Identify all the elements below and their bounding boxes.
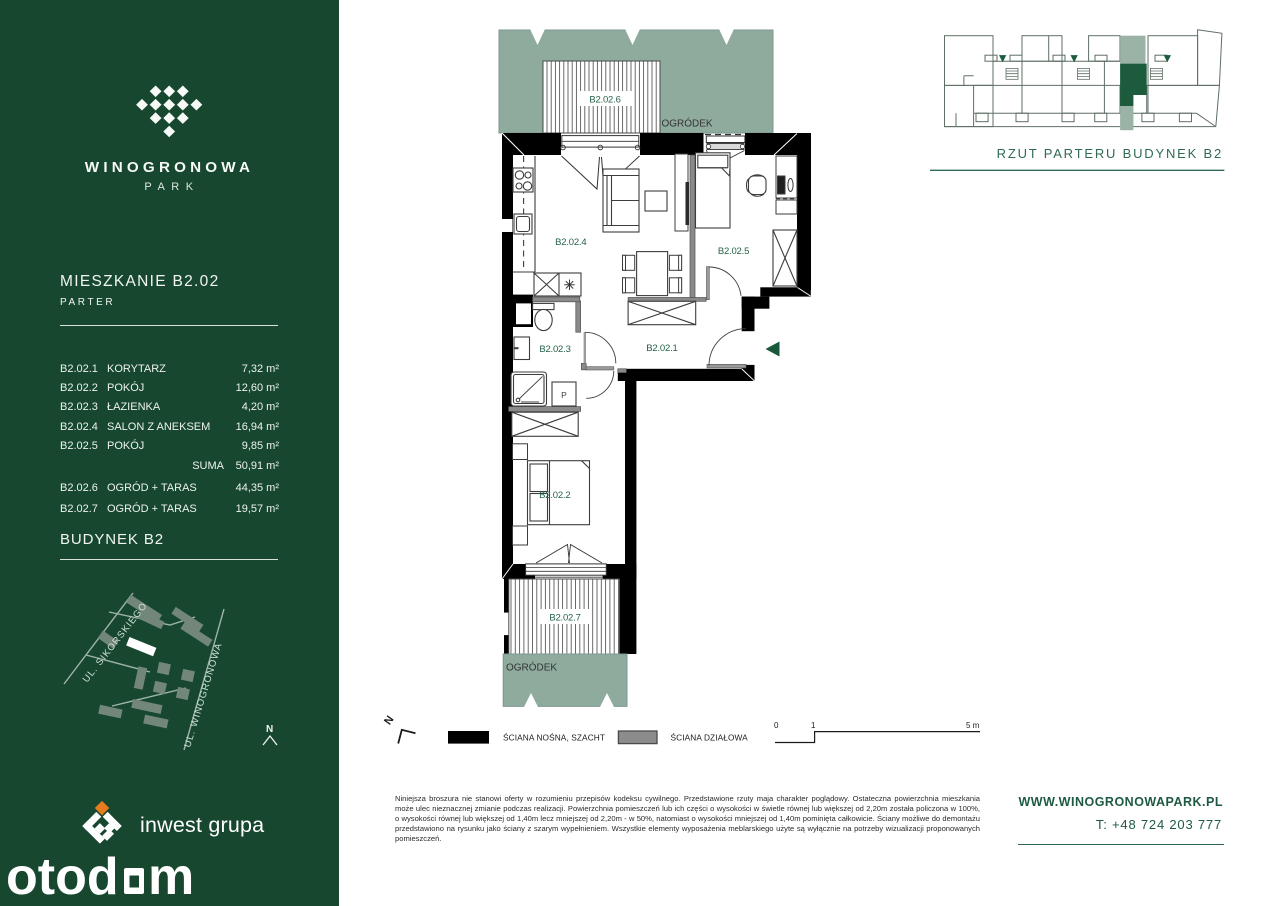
svg-text:B2.02.2: B2.02.2 bbox=[539, 490, 570, 501]
svg-text:ŚCIANA DZIAŁOWA: ŚCIANA DZIAŁOWA bbox=[671, 732, 749, 743]
svg-text:N: N bbox=[382, 714, 396, 727]
svg-text:0: 0 bbox=[774, 721, 779, 730]
svg-text:B2.02.5: B2.02.5 bbox=[718, 246, 749, 257]
svg-text:RZUT PARTERU BUDYNEK B2: RZUT PARTERU BUDYNEK B2 bbox=[997, 146, 1223, 161]
svg-text:5 m: 5 m bbox=[966, 721, 980, 730]
svg-text:P: P bbox=[561, 390, 567, 400]
svg-text:B2.02.3: B2.02.3 bbox=[539, 344, 570, 355]
svg-text:B2.02.4: B2.02.4 bbox=[555, 237, 586, 248]
svg-text:B2.02.6: B2.02.6 bbox=[589, 95, 620, 106]
svg-text:1: 1 bbox=[811, 721, 816, 730]
svg-text:ŚCIANA NOŚNA, SZACHT: ŚCIANA NOŚNA, SZACHT bbox=[503, 732, 605, 743]
svg-text:OGRÓDEK: OGRÓDEK bbox=[506, 661, 557, 674]
svg-text:OGRÓDEK: OGRÓDEK bbox=[661, 117, 712, 130]
svg-text:B2.02.7: B2.02.7 bbox=[549, 613, 580, 624]
svg-text:B2.02.1: B2.02.1 bbox=[646, 343, 677, 354]
